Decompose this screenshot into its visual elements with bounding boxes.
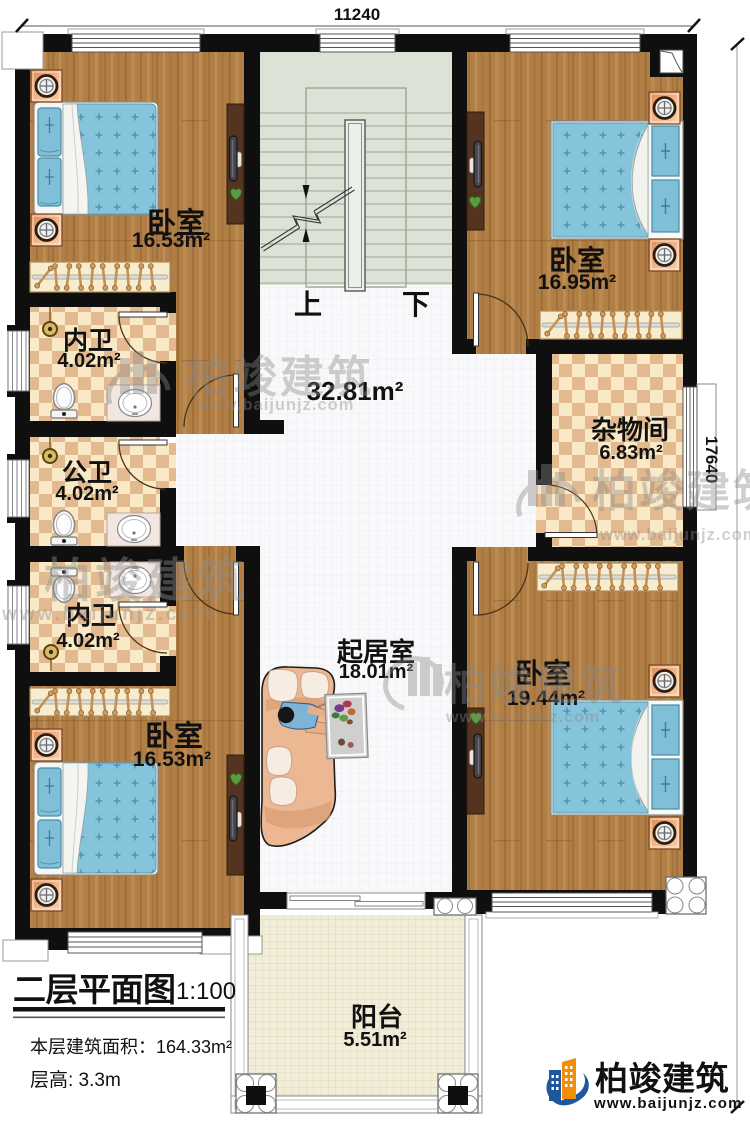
svg-text:www.baijunjz.com: www.baijunjz.com <box>593 1095 743 1112</box>
svg-text:柏竣建筑: 柏竣建筑 <box>444 662 624 710</box>
svg-text:5.51m²: 5.51m² <box>343 1029 407 1051</box>
svg-text:4.02m²: 4.02m² <box>55 483 119 505</box>
svg-text:本层建筑面积：164.33m²: 本层建筑面积：164.33m² <box>30 1037 232 1057</box>
svg-text:6.83m²: 6.83m² <box>599 442 663 464</box>
svg-text:18.01m²: 18.01m² <box>339 661 414 683</box>
svg-text:1:100: 1:100 <box>176 978 236 1005</box>
svg-text:4.02m²: 4.02m² <box>56 630 120 652</box>
svg-text:柏竣建筑: 柏竣建筑 <box>186 353 374 402</box>
svg-text:下: 下 <box>402 289 430 320</box>
svg-text:4.02m²: 4.02m² <box>57 350 121 372</box>
svg-text:柏竣建筑: 柏竣建筑 <box>592 467 750 516</box>
svg-text:柏竣建筑: 柏竣建筑 <box>595 1060 729 1097</box>
svg-text:www.baijunjz.com: www.baijunjz.com <box>195 396 354 414</box>
svg-text:www.baijunjz.com: www.baijunjz.com <box>1 604 214 625</box>
svg-text:柏竣建筑: 柏竣建筑 <box>44 554 248 607</box>
svg-text:www.baijunjz.com: www.baijunjz.com <box>599 526 750 544</box>
svg-text:www.baijunjz.com: www.baijunjz.com <box>445 709 600 726</box>
svg-text:16.53m²: 16.53m² <box>132 229 210 252</box>
svg-text:二层平面图: 二层平面图 <box>13 971 176 1008</box>
svg-text:11240: 11240 <box>334 5 380 24</box>
svg-text:上: 上 <box>294 289 322 320</box>
svg-text:16.53m²: 16.53m² <box>133 748 211 771</box>
svg-text:杂物间: 杂物间 <box>591 415 669 445</box>
svg-text:层高: 3.3m: 层高: 3.3m <box>30 1069 121 1091</box>
svg-text:阳台: 阳台 <box>351 1002 403 1032</box>
svg-text:16.95m²: 16.95m² <box>538 271 616 294</box>
